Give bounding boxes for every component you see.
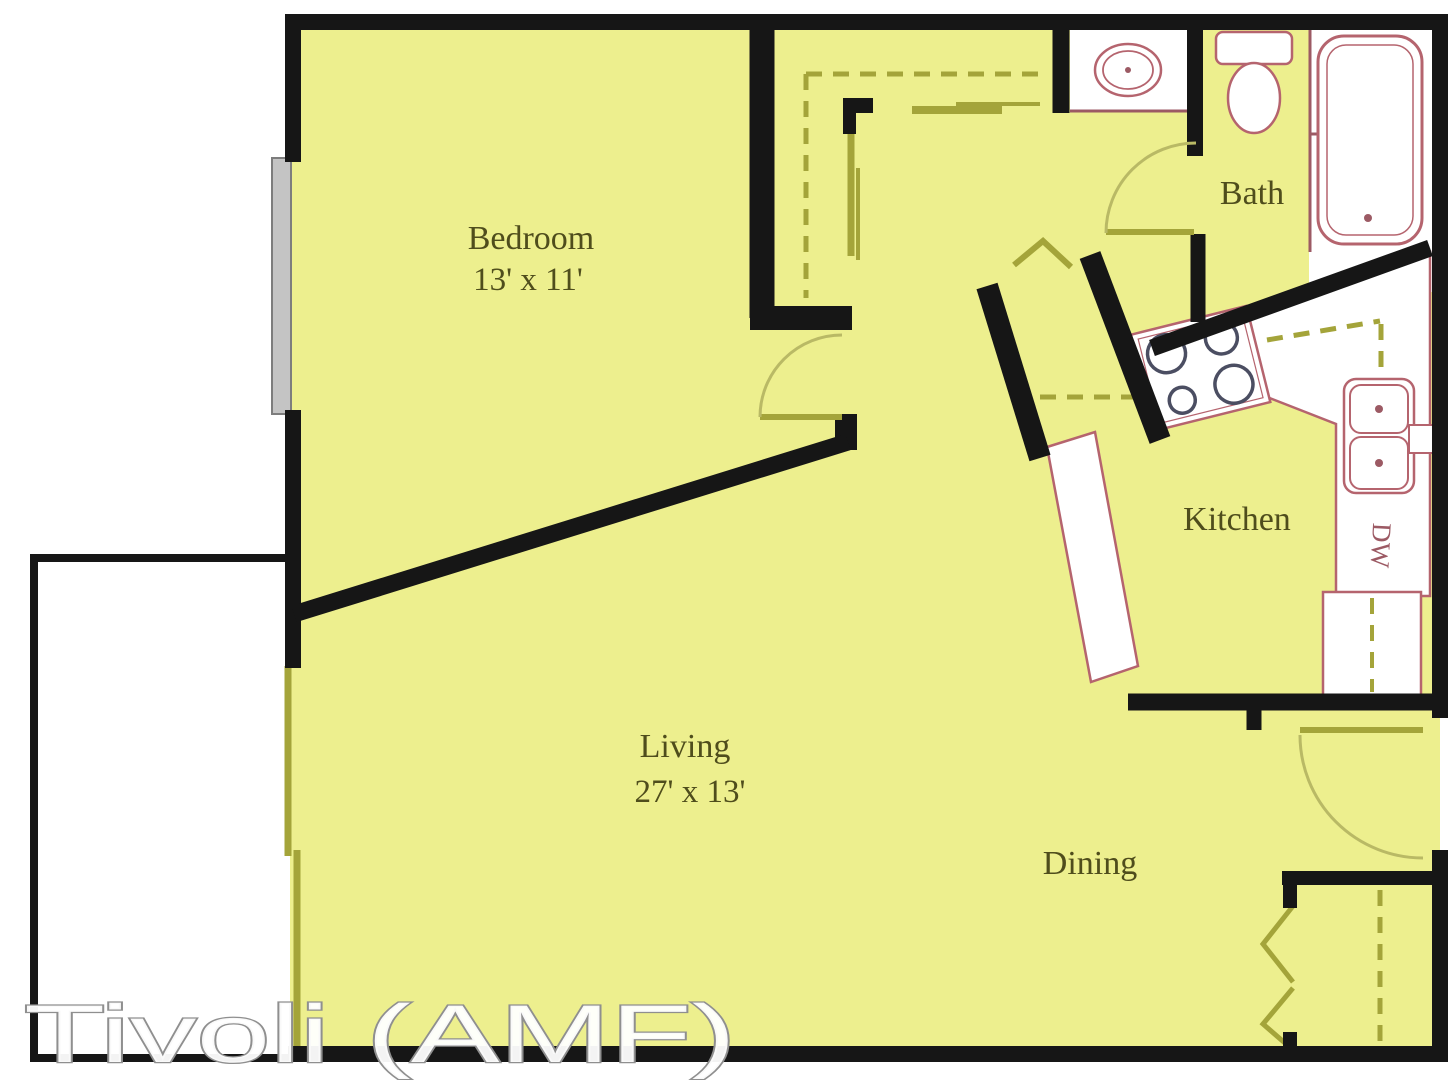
kitchen-label: Kitchen (1183, 501, 1291, 538)
floor-area (290, 18, 1440, 1058)
bathtub-icon (1310, 28, 1422, 252)
bath-label: Bath (1220, 175, 1284, 212)
refrigerator-icon (1323, 592, 1421, 696)
patio (38, 562, 288, 1054)
bedroom-dims: 13' x 11' (473, 262, 583, 298)
watermark: Tivoli (AMF) (24, 989, 736, 1080)
wall-segment (843, 98, 856, 134)
bedroom-label: Bedroom (468, 220, 595, 257)
floor-plan: Bedroom 13' x 11' Bath Kitchen Living 27… (0, 0, 1451, 1080)
dishwasher-icon: DW (1365, 522, 1397, 569)
living-dims: 27' x 13' (635, 774, 746, 810)
dining-label: Dining (1043, 845, 1137, 882)
unit-floor (290, 18, 1440, 1058)
vanity-sink-icon (1095, 44, 1161, 96)
floor-plan-image: Bedroom 13' x 11' Bath Kitchen Living 27… (0, 0, 1451, 1080)
window-icon (272, 158, 291, 414)
living-label: Living (640, 728, 731, 765)
